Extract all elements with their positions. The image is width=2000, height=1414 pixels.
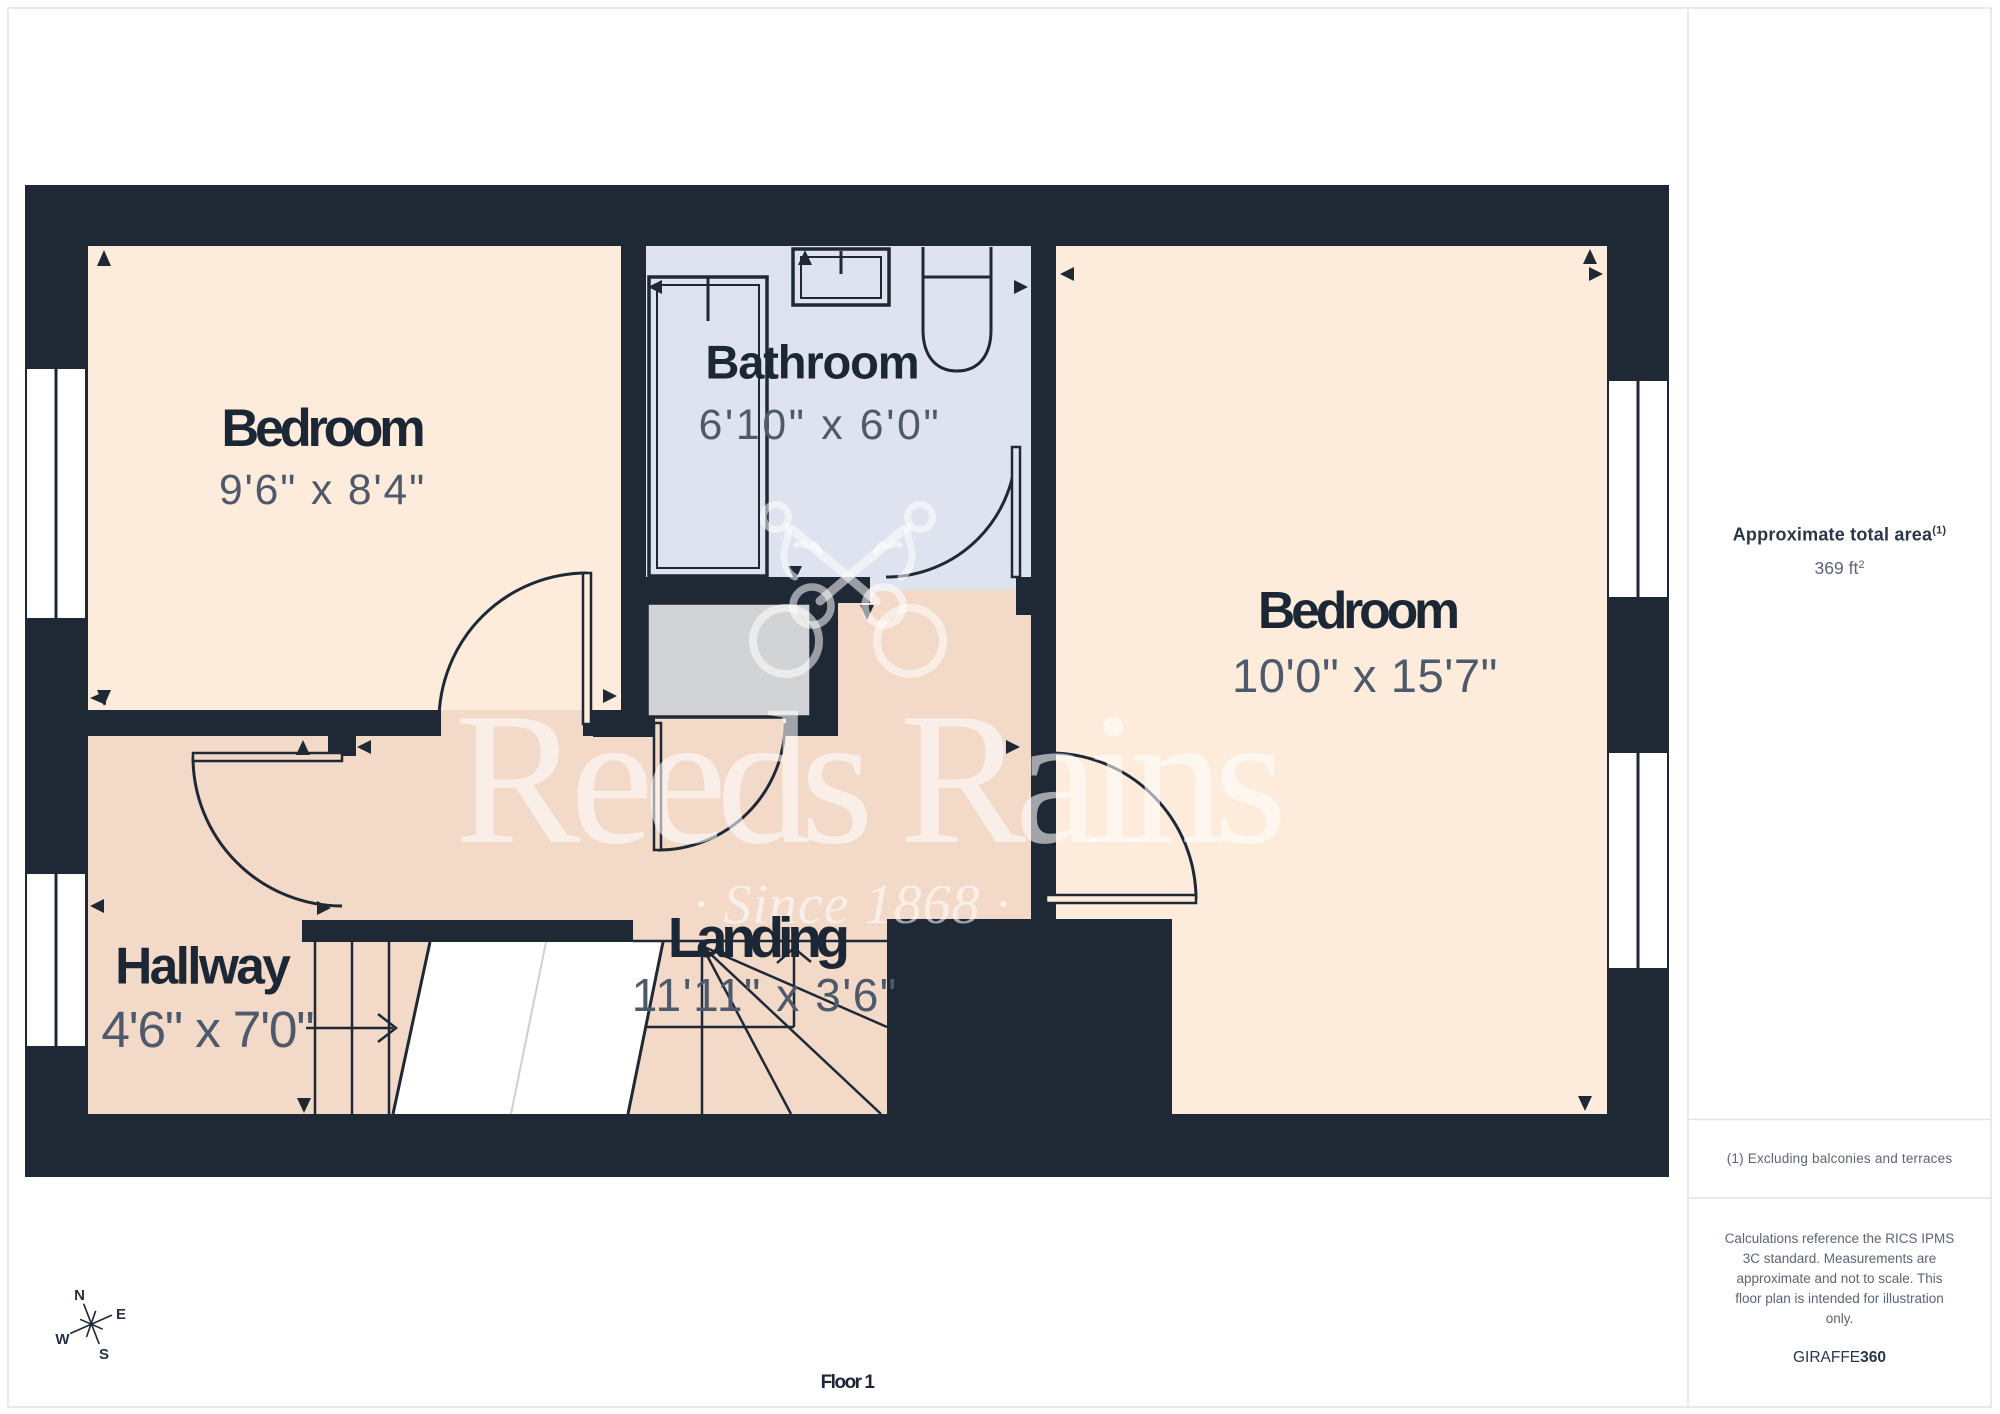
svg-text:GIRAFFE360: GIRAFFE360 [1793,1349,1886,1366]
svg-text:E: E [116,1306,126,1323]
svg-text:Bathroom: Bathroom [705,336,918,389]
svg-text:9'6" x 8'4": 9'6" x 8'4" [219,466,426,514]
svg-text:(1) Excluding balconies and te: (1) Excluding balconies and terraces [1727,1151,1953,1166]
svg-text:3C standard. Measurements are: 3C standard. Measurements are [1743,1251,1937,1266]
svg-text:floor plan is intended for ill: floor plan is intended for illustration [1735,1291,1944,1306]
svg-text:N: N [74,1287,85,1304]
svg-text:4'6" x 7'0": 4'6" x 7'0" [101,1000,313,1058]
svg-text:Bedroom: Bedroom [221,400,423,458]
svg-text:11'11" x 3'6": 11'11" x 3'6" [632,969,898,1021]
svg-text:Floor 1: Floor 1 [821,1372,876,1393]
svg-text:369 ft2: 369 ft2 [1815,558,1865,578]
svg-text:Hallway: Hallway [115,937,291,995]
svg-text:Landing: Landing [668,907,847,970]
svg-text:approximate and not to scale.: approximate and not to scale. This [1736,1271,1942,1286]
svg-text:S: S [99,1346,109,1363]
svg-text:Reeds Rains: Reeds Rains [455,674,1281,883]
svg-text:6'10" x 6'0": 6'10" x 6'0" [699,401,942,449]
svg-text:Calculations reference the RIC: Calculations reference the RICS IPMS [1725,1231,1955,1246]
svg-text:Approximate total area(1): Approximate total area(1) [1733,525,1947,545]
svg-text:Bedroom: Bedroom [1258,581,1457,639]
svg-text:10'0" x 15'7": 10'0" x 15'7" [1232,650,1498,703]
svg-text:W: W [55,1331,70,1348]
svg-text:only.: only. [1826,1311,1854,1326]
